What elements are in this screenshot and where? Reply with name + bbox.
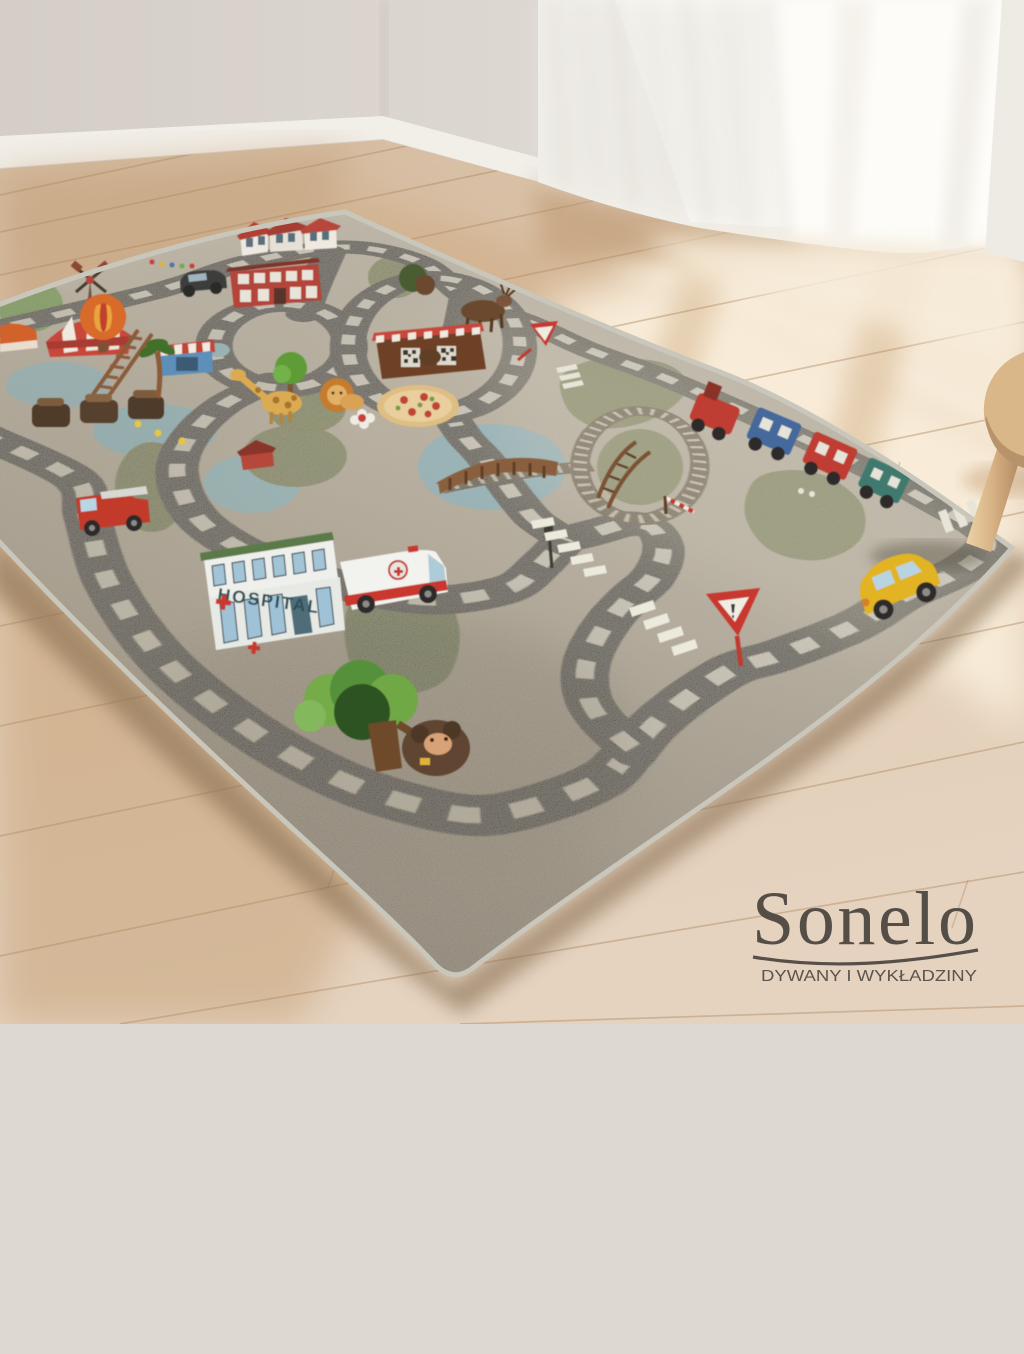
- svg-text:Sonelo: Sonelo: [752, 877, 976, 961]
- svg-text:DYWANY I WYKŁADZINY: DYWANY I WYKŁADZINY: [761, 968, 977, 985]
